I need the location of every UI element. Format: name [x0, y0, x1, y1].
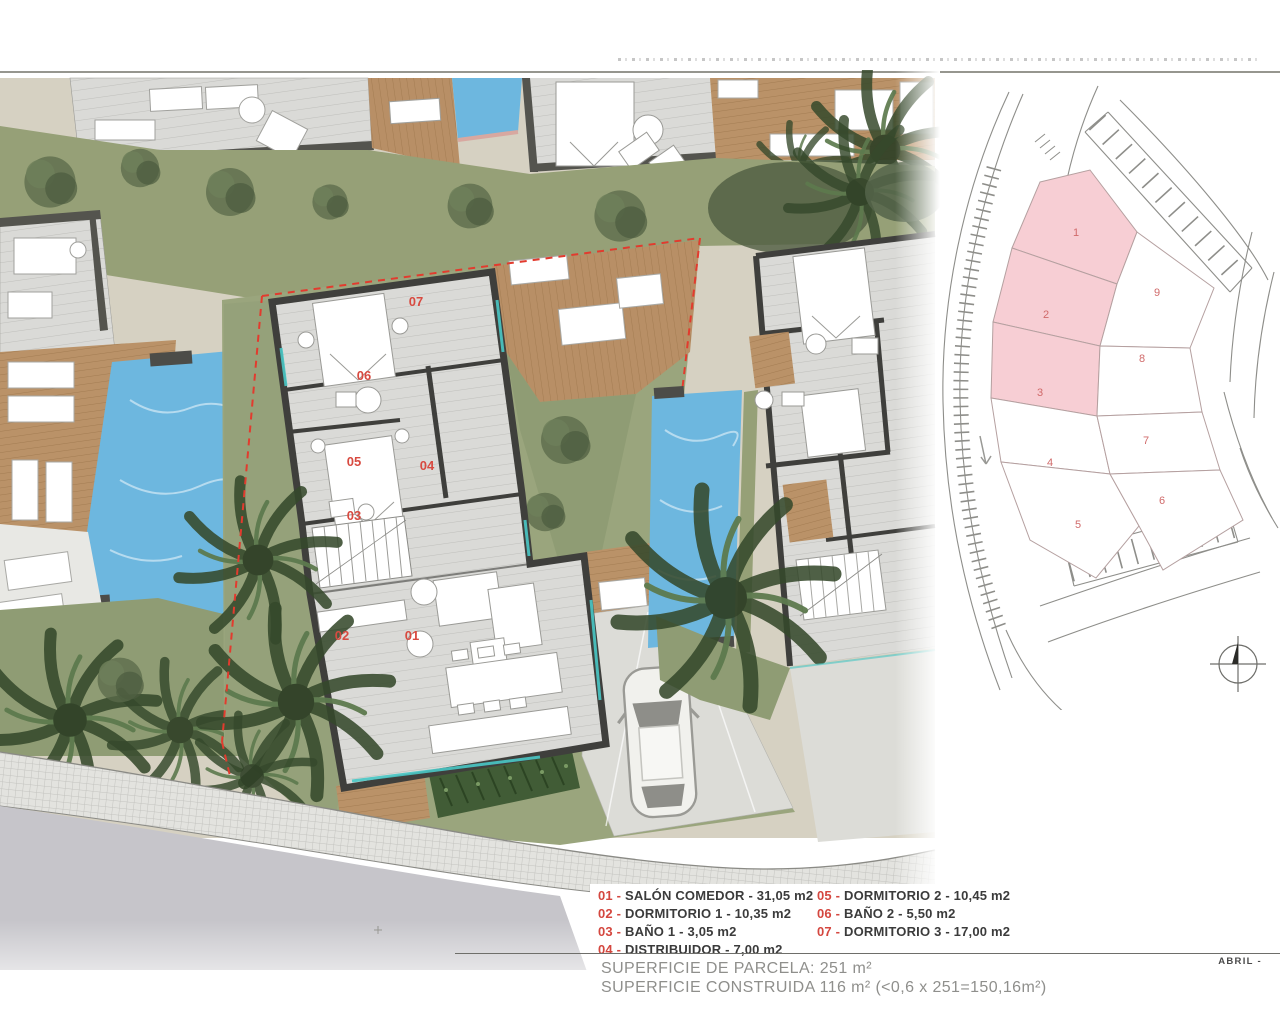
traffic-arrow-icon: [980, 436, 991, 464]
plot-label: 2: [1043, 309, 1049, 321]
faded-plan-title: [618, 58, 1258, 61]
neighbor-pool-small: [452, 78, 522, 140]
plot-label: 8: [1139, 353, 1145, 365]
plot-label: 1: [1073, 227, 1079, 239]
stairs: [312, 516, 412, 588]
legend-item: 06 - BAÑO 2 - 5,50 m2: [817, 906, 1036, 924]
built-area-text: SUPERFICIE CONSTRUIDA 116 m² (<0,6 x 251…: [601, 978, 1047, 997]
site-plots: [991, 170, 1243, 578]
footer-date: ABRIL -: [1140, 956, 1262, 967]
legend-item: 07 - DORMITORIO 3 - 17,00 m2: [817, 924, 1036, 942]
room-legend: 01 - SALÓN COMEDOR - 31,05 m2 02 - DORMI…: [590, 884, 1042, 958]
room-label: 06: [357, 368, 371, 383]
legend-item: 05 - DORMITORIO 2 - 10,45 m2: [817, 888, 1036, 906]
parcel-area-text: SUPERFICIE DE PARCELA: 251 m²: [601, 959, 1047, 978]
plot-label: 4: [1047, 457, 1053, 469]
plot-label: 7: [1143, 435, 1149, 447]
room-label: 05: [347, 454, 361, 469]
location-site-map: 1 2 3 4 5 6 7 8 9: [930, 80, 1280, 710]
room-label: 02: [335, 628, 349, 643]
compass-icon: [1210, 636, 1266, 692]
plot-7: [1097, 412, 1220, 474]
footer-divider-line: [455, 953, 1280, 954]
room-label: 04: [420, 458, 435, 473]
legend-item: 01 - SALÓN COMEDOR - 31,05 m2: [598, 888, 817, 906]
legend-item: 03 - BAÑO 1 - 3,05 m2: [598, 924, 817, 942]
room-label: 01: [405, 628, 419, 643]
surface-summary: SUPERFICIE DE PARCELA: 251 m² SUPERFICIE…: [601, 959, 1047, 997]
plot-8: [1097, 346, 1202, 416]
plot-label: 9: [1154, 287, 1160, 299]
main-floor-plan: 07 06 05 04 03 02 01: [0, 70, 940, 1010]
neighbor-stairs: [796, 550, 886, 620]
page-canvas: 07 06 05 04 03 02 01: [0, 0, 1280, 1024]
plot-label: 3: [1037, 387, 1043, 399]
room-label: 03: [347, 508, 361, 523]
legend-item: 02 - DORMITORIO 1 - 10,35 m2: [598, 906, 817, 924]
plot-label: 6: [1159, 495, 1165, 507]
room-label: 07: [409, 294, 423, 309]
plot-label: 5: [1075, 519, 1081, 531]
legend-item: 04 - DISTRIBUIDOR - 7,00 m2: [598, 942, 817, 960]
